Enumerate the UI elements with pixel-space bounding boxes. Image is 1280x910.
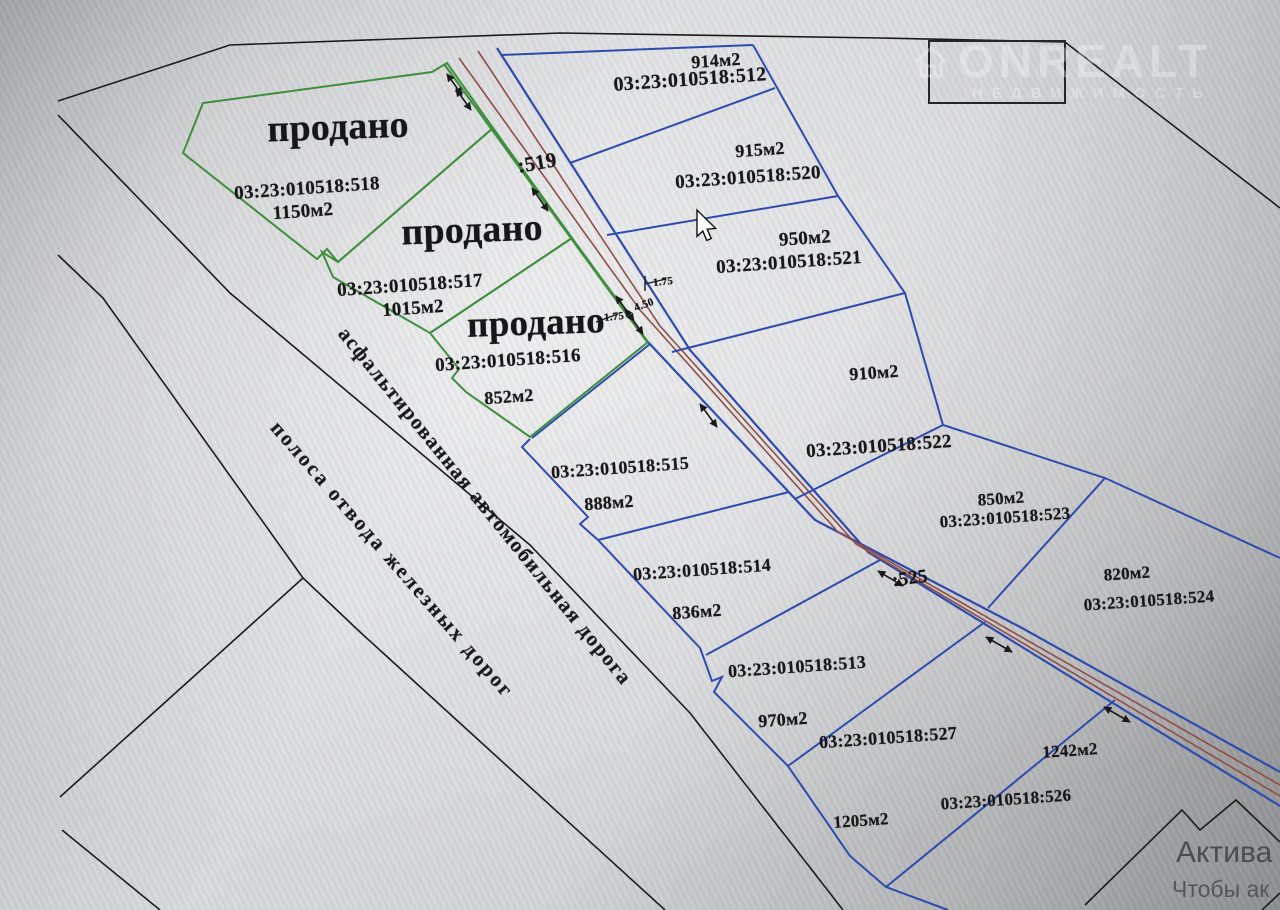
plot-515-area: 888м2: [584, 491, 635, 515]
plot-514-area: 836м2: [672, 600, 723, 624]
activation-watermark-line1: Актива: [1176, 836, 1272, 870]
mouse-cursor: [694, 208, 722, 244]
dimension-175-right: 1.75: [652, 275, 673, 289]
stamp-box: [929, 41, 1065, 103]
plot-518-area: 1150м2: [272, 199, 334, 225]
plot-520-area: 915м2: [735, 138, 786, 162]
plot-526-area: 1242м2: [1042, 739, 1099, 763]
plot-524-area: 820м2: [1103, 562, 1151, 585]
cadastral-map-photo: продано 03:23:010518:518 1150м2 продано …: [0, 0, 1280, 910]
plot-521-area: 950м2: [778, 226, 831, 252]
plot-516-sold-label: продано: [466, 299, 605, 347]
blue-plot-boundaries-ne: [501, 45, 1280, 608]
plot-527-area: 1205м2: [833, 809, 890, 833]
plot-518-sold-label: продано: [267, 103, 410, 152]
plot-522-area: 910м2: [849, 361, 900, 385]
plot-517-area: 1015м2: [381, 296, 444, 322]
blue-plot-boundaries-sw: [522, 344, 1115, 910]
road-corridor: [444, 48, 1280, 806]
plot-516-area: 852м2: [484, 385, 535, 409]
plot-517-sold-label: продано: [401, 206, 544, 255]
activation-watermark-line2: Чтобы ак: [1172, 876, 1269, 903]
roadway-line-2: [478, 51, 1280, 796]
roadway-line-1: [459, 58, 1280, 785]
dimension-175-left: 1.75: [603, 310, 624, 324]
plot-513-area: 970м2: [758, 708, 809, 732]
map-linework: [0, 0, 1280, 910]
